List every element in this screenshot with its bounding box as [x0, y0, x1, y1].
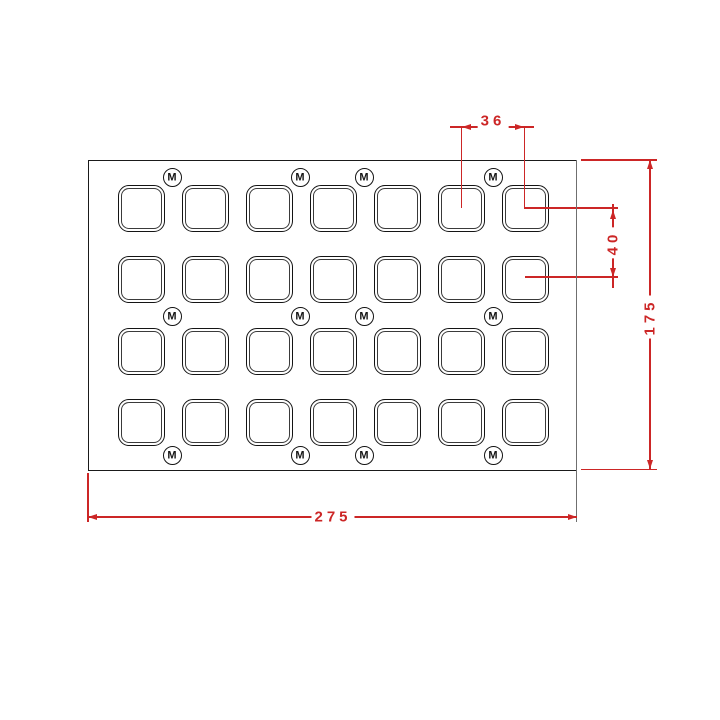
cavity-square: [502, 328, 549, 375]
dim-arrow: [88, 514, 97, 520]
cavity-square: [502, 256, 549, 303]
cavity-square: [246, 328, 293, 375]
cavity-inner-outline: [377, 259, 418, 300]
cavity-square: [246, 256, 293, 303]
cavity-square: [374, 185, 421, 232]
cavity-inner-outline: [505, 402, 546, 443]
cavity-square: [438, 256, 485, 303]
cavity-inner-outline: [121, 331, 162, 372]
dim-pitch-y-label: 40: [605, 228, 622, 259]
dim-arrow: [462, 124, 471, 130]
cavity-inner-outline: [249, 402, 290, 443]
m-marker: M: [291, 446, 310, 465]
cavity-inner-outline: [441, 331, 482, 372]
m-marker: M: [163, 168, 182, 187]
m-marker-label: M: [488, 172, 497, 183]
dim-arrow: [610, 210, 616, 219]
m-marker-label: M: [295, 450, 304, 461]
m-marker-label: M: [488, 450, 497, 461]
dim-arrow: [647, 160, 653, 169]
cavity-square: [118, 328, 165, 375]
cavity-inner-outline: [313, 188, 354, 229]
dim-extension-line: [524, 127, 525, 208]
cavity-inner-outline: [377, 402, 418, 443]
dim-extension-line-gray: [576, 160, 578, 522]
dim-arrow: [568, 514, 577, 520]
cavity-square: [118, 256, 165, 303]
cavity-inner-outline: [441, 402, 482, 443]
m-marker: M: [355, 168, 374, 187]
cavity-inner-outline: [505, 331, 546, 372]
cavity-inner-outline: [249, 188, 290, 229]
cavity-square: [310, 256, 357, 303]
dim-plate-height-label: 175: [642, 295, 659, 338]
cavity-square: [374, 256, 421, 303]
cavity-inner-outline: [249, 331, 290, 372]
cavity-inner-outline: [377, 331, 418, 372]
cavity-inner-outline: [121, 188, 162, 229]
m-marker: M: [163, 307, 182, 326]
m-marker-label: M: [359, 172, 368, 183]
cavity-inner-outline: [441, 259, 482, 300]
cavity-inner-outline: [313, 402, 354, 443]
cavity-square: [118, 399, 165, 446]
cavity-square: [374, 328, 421, 375]
m-marker: M: [484, 446, 503, 465]
cavity-inner-outline: [121, 402, 162, 443]
cavity-inner-outline: [185, 331, 226, 372]
cavity-square: [310, 399, 357, 446]
m-marker-label: M: [295, 311, 304, 322]
m-marker: M: [291, 168, 310, 187]
dim-arrow: [610, 268, 616, 277]
dim-arrow: [647, 460, 653, 469]
m-marker-label: M: [295, 172, 304, 183]
m-marker-label: M: [167, 311, 176, 322]
cavity-inner-outline: [313, 331, 354, 372]
m-marker: M: [163, 446, 182, 465]
cavity-inner-outline: [313, 259, 354, 300]
m-marker-label: M: [167, 172, 176, 183]
cavity-square: [118, 185, 165, 232]
cavity-square: [374, 399, 421, 446]
dim-plate-width-label: 275: [311, 509, 354, 526]
cavity-square: [246, 399, 293, 446]
cavity-square: [246, 185, 293, 232]
cavity-square: [182, 399, 229, 446]
m-marker: M: [484, 168, 503, 187]
cavity-square: [438, 399, 485, 446]
cavity-inner-outline: [185, 188, 226, 229]
cavity-inner-outline: [185, 259, 226, 300]
dim-extension-line: [461, 127, 462, 208]
cavity-square: [310, 328, 357, 375]
cavity-inner-outline: [185, 402, 226, 443]
m-marker-label: M: [359, 450, 368, 461]
cavity-square: [310, 185, 357, 232]
cavity-inner-outline: [249, 259, 290, 300]
cavity-square: [502, 399, 549, 446]
m-marker-label: M: [488, 311, 497, 322]
technical-drawing-canvas: MMMMMMMMMMMM 36 40 175 275: [0, 0, 720, 720]
m-marker-label: M: [359, 311, 368, 322]
m-marker: M: [355, 307, 374, 326]
m-marker: M: [355, 446, 374, 465]
m-marker: M: [291, 307, 310, 326]
cavity-inner-outline: [377, 188, 418, 229]
m-marker-label: M: [167, 450, 176, 461]
cavity-square: [182, 256, 229, 303]
dim-pitch-x-label: 36: [478, 113, 509, 130]
dim-extension-line: [524, 207, 618, 208]
dim-extension-line: [525, 276, 618, 277]
m-marker: M: [484, 307, 503, 326]
cavity-inner-outline: [121, 259, 162, 300]
cavity-square: [182, 328, 229, 375]
dim-arrow: [515, 124, 524, 130]
cavity-square: [182, 185, 229, 232]
cavity-square: [438, 328, 485, 375]
cavity-inner-outline: [505, 259, 546, 300]
